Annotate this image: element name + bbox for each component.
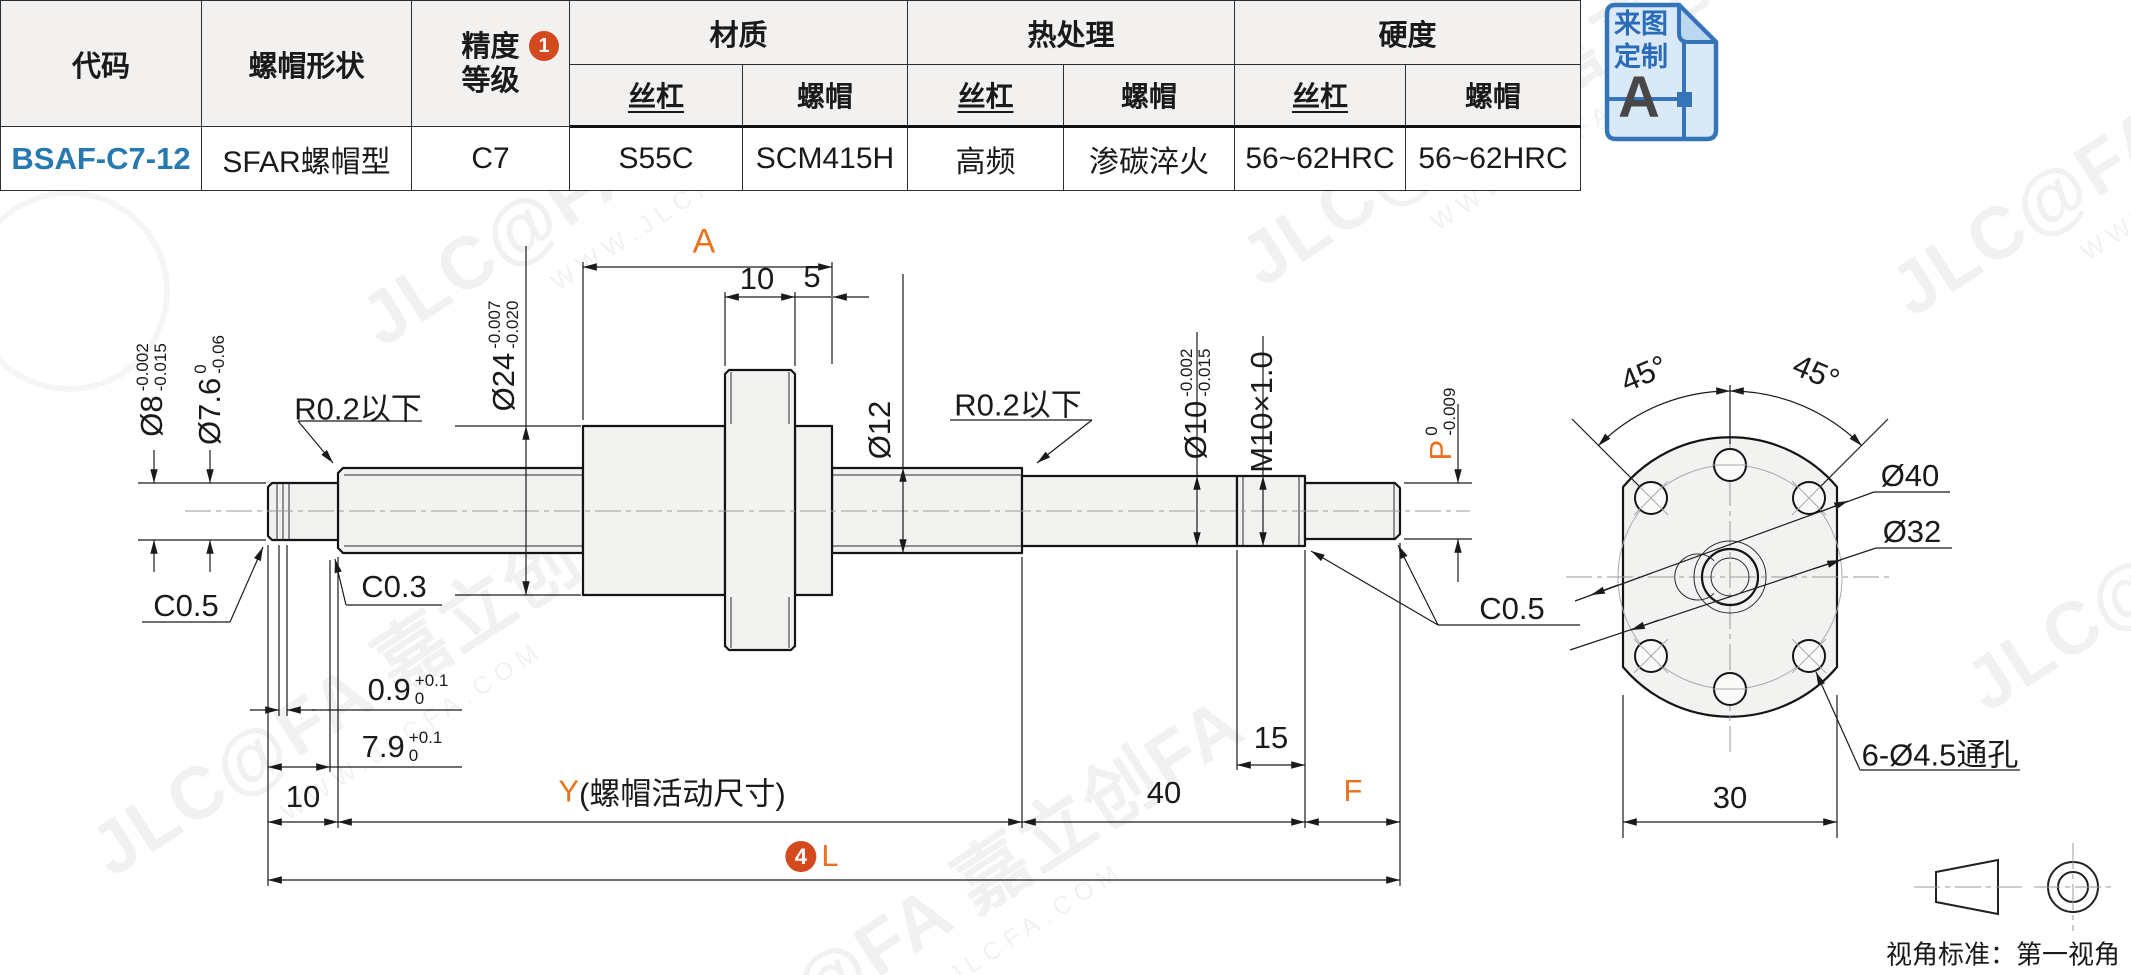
dim-L: 4 L — [785, 838, 838, 874]
dim-m10: M10×1.0 — [1244, 351, 1280, 473]
sub-header-material-screw[interactable]: 丝杠 — [570, 65, 743, 127]
sub-header-heat-nut: 螺帽 — [1064, 65, 1235, 127]
cell-heat-nut: 渗碳淬火 — [1064, 127, 1235, 191]
col-header-precision: 精度等级 1 — [412, 1, 570, 127]
dim-r02-right: R0.2以下 — [954, 380, 1081, 425]
dim-Y: Y(螺帽活动尺寸) — [558, 769, 785, 814]
col-header-nut-shape: 螺帽形状 — [202, 1, 412, 127]
dim-c05-left: C0.5 — [153, 588, 218, 624]
sub-header-hardness-screw[interactable]: 丝杠 — [1235, 65, 1406, 127]
cell-precision: C7 — [412, 127, 570, 191]
sub-header-heat-screw[interactable]: 丝杠 — [908, 65, 1064, 127]
sub-header-hardness-nut: 螺帽 — [1406, 65, 1581, 127]
cell-code[interactable]: BSAF-C7-12 — [1, 127, 202, 191]
sub-header-material-nut: 螺帽 — [743, 65, 908, 127]
dim-c03: C0.3 — [361, 569, 426, 605]
dim-P: P 0-0.009 — [1423, 388, 1459, 461]
dim-5-top: 5 — [803, 259, 820, 295]
col-header-code: 代码 — [1, 1, 202, 127]
spec-table: 代码 螺帽形状 精度等级 1 材质 热处理 硬度 丝杠 螺帽 丝杠 螺帽 丝杠 … — [0, 0, 1581, 191]
dim-dia24: Ø24 -0.007-0.020 — [486, 301, 522, 412]
dim-F: F — [1344, 773, 1363, 809]
group-header-material: 材质 — [570, 1, 908, 65]
precision-line2: 等级 — [412, 64, 569, 98]
dim-r02-left: R0.2以下 — [294, 384, 421, 429]
badge-letter: A — [1618, 64, 1660, 131]
dim-c05-right: C0.5 — [1479, 591, 1544, 627]
dim-15: 15 — [1254, 720, 1288, 756]
page: JLC@FA 嘉立创FAWWW.JLCFA.COM JLC@FA 嘉立创FAWW… — [0, 0, 2131, 975]
dim-10-top: 10 — [740, 261, 774, 297]
first-angle-projection-symbol — [1914, 843, 2112, 931]
cell-hardness-screw: 56~62HRC — [1235, 127, 1406, 191]
dim-7-9: 7.9 +0.10 — [362, 729, 443, 765]
dim-10-bottom: 10 — [286, 779, 320, 815]
side-view-dimensions — [138, 246, 1580, 886]
dim-dia8: Ø8 -0.002-0.015 — [134, 343, 170, 437]
dim-40: 40 — [1147, 775, 1181, 811]
dim-dia32: Ø32 — [1883, 514, 1942, 550]
dim-0-9: 0.9 +0.10 — [368, 672, 449, 708]
cell-nut-shape: SFAR螺帽型 — [202, 127, 412, 191]
footnote-1-badge[interactable]: 1 — [529, 31, 559, 61]
cell-material-screw: S55C — [570, 127, 743, 191]
cell-material-nut: SCM415H — [743, 127, 908, 191]
dim-dia40: Ø40 — [1881, 458, 1940, 494]
dim-A: A — [693, 223, 716, 262]
dim-30: 30 — [1713, 780, 1747, 816]
footnote-4-badge[interactable]: 4 — [785, 841, 816, 872]
dim-holes: 6-Ø4.5通孔 — [1862, 730, 2019, 775]
view-standard-note: 视角标准：第一视角 — [1886, 935, 2120, 972]
dim-dia12: Ø12 — [862, 401, 898, 460]
group-header-heat-treatment: 热处理 — [908, 1, 1235, 65]
custom-drawing-badge[interactable]: 来图定制 A — [1603, 2, 1721, 142]
cell-heat-screw: 高频 — [908, 127, 1064, 191]
dim-dia10: Ø10 -0.002-0.015 — [1178, 349, 1214, 460]
dim-dia7-6: Ø7.6 0-0.06 — [192, 335, 228, 445]
cell-hardness-nut: 56~62HRC — [1406, 127, 1581, 191]
group-header-hardness: 硬度 — [1235, 1, 1581, 65]
